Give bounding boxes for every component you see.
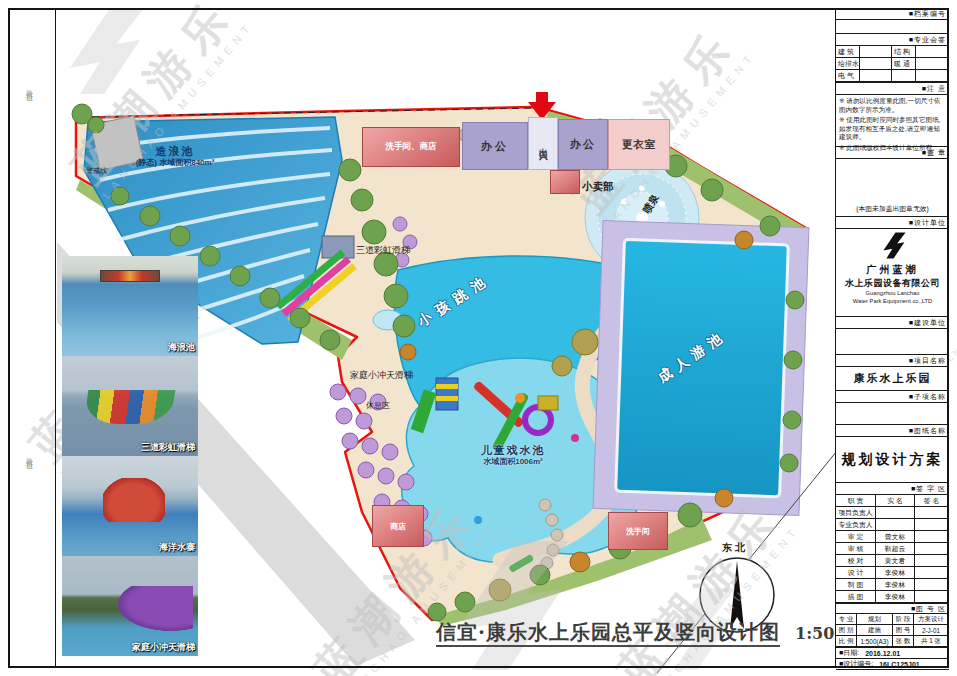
notes-band: ■注 意: [836, 83, 949, 95]
archive-no-cell: [836, 20, 949, 34]
drawing-sheet: 蓝潮游乐 LANCHAO AMUSEMENT 蓝潮游乐 LANCHAO AMUS…: [0, 0, 957, 676]
building-toilet-shop-top: 洗手间、商店: [362, 127, 460, 167]
num-cell: 阶 段: [893, 614, 914, 625]
title-block: ■档案编号 ■专业会签 建 筑 结 构 给排水 暖 通 电 气 ■注 意 ※ 请…: [835, 8, 949, 668]
designer-band: ■设计单位: [836, 217, 949, 229]
sig-role-cell: 审 核: [836, 543, 876, 555]
sig-name-cell: 黄文君: [876, 555, 915, 567]
sig-role-cell: 校 对: [836, 555, 876, 567]
sig-header-cell: 实 名: [876, 495, 915, 507]
discipline-sign-cell: [860, 70, 892, 82]
archive-no-band: ■档案编号: [836, 8, 949, 20]
discipline-cell: 暖 通: [892, 58, 916, 70]
note-item: ※ 请勿以比例度量此图,一切尺寸依图内数字所示为准。: [839, 97, 946, 114]
note-item: ※ 使用此图时应同时参照其它图纸,如发现有相互矛盾之处,请立即通知建筑师。: [839, 116, 946, 142]
number-band: ■图 号 区: [836, 604, 949, 614]
building-office-b: 办公: [558, 119, 608, 170]
photo-slide-shape: [118, 586, 193, 631]
owner-band: ■建设单位: [836, 317, 949, 329]
num-cell: 方案设计: [914, 614, 948, 625]
photo-caption: 三道彩虹滑梯: [141, 441, 195, 454]
photo-caption: 海洋水寨: [159, 541, 195, 554]
sig-header-cell: 签 名: [915, 495, 948, 507]
photo-slides-shape: [84, 390, 176, 424]
children-pool-label: 儿童戏水池 水域面积1006m²: [448, 444, 578, 466]
num-cell: 比 例: [836, 636, 857, 647]
discipline-sign-cell: [860, 58, 892, 70]
signature-band: ■签 字 区: [836, 483, 949, 495]
sig-role-cell: 项目负责人: [836, 507, 876, 519]
binding-margin-line: [55, 8, 56, 668]
building-shop-bottom: 商店: [372, 505, 424, 547]
drawing-title-text: 信宜·康乐水上乐园总平及竖向设计图: [436, 620, 780, 647]
photo-rainbow-slides: 三道彩虹滑梯: [62, 356, 198, 456]
kiosk-label: 小卖部: [582, 180, 614, 192]
date-value: 2016.12.01: [865, 650, 900, 657]
num-cell: 图 号: [893, 625, 914, 636]
photo-family-slide: 家庭小冲天滑梯: [62, 556, 198, 656]
sig-role-cell: 审 定: [836, 531, 876, 543]
company-name-en1: Guangzhou Lanchao: [836, 290, 949, 298]
sig-sign-cell: [915, 555, 948, 567]
stamp-band: ■盖 章: [836, 147, 949, 159]
sig-name-cell: [876, 519, 915, 531]
company-name-cn1: 广州蓝潮: [836, 263, 949, 277]
discipline-sign-cell: [916, 58, 948, 70]
photo-wave-pool: 海浪池: [62, 256, 198, 356]
company-name-en2: Water Park Equipment co.,LTD: [836, 298, 949, 306]
discipline-cell: 结 构: [892, 46, 916, 58]
photo-water-fort: 海洋水寨: [62, 456, 198, 556]
notes-area: ※ 请勿以比例度量此图,一切尺寸依图内数字所示为准。 ※ 使用此图时应同时参照其…: [836, 95, 949, 147]
subproject-band: ■子项名称: [836, 391, 949, 403]
photo-caption: 海浪池: [168, 341, 195, 354]
photo-caption: 家庭小冲天滑梯: [132, 641, 195, 654]
design-no-row: ■设计编号: 16LC125J01: [836, 659, 949, 670]
owner-cell: [836, 329, 949, 355]
sig-header-cell: 职 责: [836, 495, 876, 507]
building-entrance: 出入口: [528, 117, 558, 170]
date-label: ■日期:: [839, 648, 859, 658]
subproject-cell: [836, 403, 949, 425]
reference-photos: 海浪池 三道彩虹滑梯 海洋水寨 家庭小冲天滑梯: [62, 256, 198, 656]
building-office-a: 办公: [462, 122, 528, 170]
building-toilet-shop-top-label: 洗手间、商店: [386, 141, 437, 153]
number-table: 专 业 规划 阶 段 方案设计 图 别 建施 图 号 2-J-01 比 例 1:…: [836, 614, 949, 648]
north-label: 东北: [722, 542, 748, 554]
num-cell: 建施: [857, 625, 893, 636]
rest-area-label: 休息区: [366, 401, 390, 410]
num-cell: 图 别: [836, 625, 857, 636]
signature-table: 职 责 实 名 签 名 项目负责人 专业负责人 审 定 曾文标 审 核 靳超云 …: [836, 495, 949, 604]
sig-sign-cell: [915, 591, 948, 603]
discipline-sign-cell: [916, 70, 948, 82]
date-row: ■日期: 2016.12.01: [836, 648, 949, 659]
entrance-label: 出入口: [537, 141, 550, 147]
discipline-cell: 建 筑: [836, 46, 860, 58]
discipline-sign-cell: [916, 46, 948, 58]
discipline-table: 建 筑 结 构 给排水 暖 通 电 气: [836, 46, 949, 83]
sig-name-cell: 李俊林: [876, 579, 915, 591]
photo-stage-shape: [100, 270, 160, 282]
drawing-name: 规划设计方案: [836, 437, 949, 483]
discipline-cell: [892, 70, 916, 82]
drawing-name-band: ■图纸名称: [836, 425, 949, 437]
stamp-note: (本图未加盖出图章无效): [836, 204, 949, 214]
project-band: ■项目名称: [836, 355, 949, 367]
sig-role-cell: 专业负责人: [836, 519, 876, 531]
drawing-title: 信宜·康乐水上乐园总平及竖向设计图 1:500: [436, 619, 846, 646]
family-slide-label: 家庭小冲天滑梯: [350, 370, 413, 380]
sig-name-cell: [876, 507, 915, 519]
sig-sign-cell: [915, 543, 948, 555]
num-cell: 规划: [857, 614, 893, 625]
num-cell: 共 1 张: [914, 636, 948, 647]
sig-name-cell: 曾文标: [876, 531, 915, 543]
sig-name-cell: 李俊林: [876, 567, 915, 579]
sig-sign-cell: [915, 579, 948, 591]
discipline-sign-cell: [860, 46, 892, 58]
design-no-value: 16LC125J01: [879, 661, 919, 668]
lanchao-logo-icon: [878, 232, 908, 259]
discipline-cell: 电 气: [836, 70, 860, 82]
num-cell: 2-J-01: [914, 625, 948, 636]
wave-pool-label: 造浪池 (静态) 水域面积840m²: [105, 145, 245, 167]
warning-line-label: 警戒线: [86, 167, 107, 175]
discipline-band: ■专业会签: [836, 34, 949, 46]
building-toilet-bottom: 洗手间: [608, 512, 668, 550]
company-name-cn2: 水上乐园设备有限公司: [836, 277, 949, 290]
building-kiosk: [550, 170, 580, 194]
num-cell: 张 数: [893, 636, 914, 647]
building-changing-room: 更衣室: [608, 119, 670, 170]
sig-sign-cell: [915, 507, 948, 519]
num-cell: 1:500(A3): [857, 636, 893, 647]
discipline-cell: 给排水: [836, 58, 860, 70]
sig-name-cell: 靳超云: [876, 543, 915, 555]
sig-sign-cell: [915, 519, 948, 531]
sig-role-cell: 描 图: [836, 591, 876, 603]
stamp-area: (本图未加盖出图章无效): [836, 159, 949, 217]
num-cell: 专 业: [836, 614, 857, 625]
sig-role-cell: 设 计: [836, 567, 876, 579]
sig-sign-cell: [915, 531, 948, 543]
sig-role-cell: 制 图: [836, 579, 876, 591]
photo-fort-shape: [103, 478, 166, 522]
adult-pool: [593, 221, 809, 516]
sig-name-cell: 李俊林: [876, 591, 915, 603]
company-block: 广州蓝潮 水上乐园设备有限公司 Guangzhou Lanchao Water …: [836, 229, 949, 317]
design-no-label: ■设计编号:: [839, 659, 873, 669]
sig-sign-cell: [915, 567, 948, 579]
rainbow-slide-label: 三道彩虹滑梯: [356, 245, 410, 255]
project-name: 康乐水上乐园: [836, 367, 949, 391]
